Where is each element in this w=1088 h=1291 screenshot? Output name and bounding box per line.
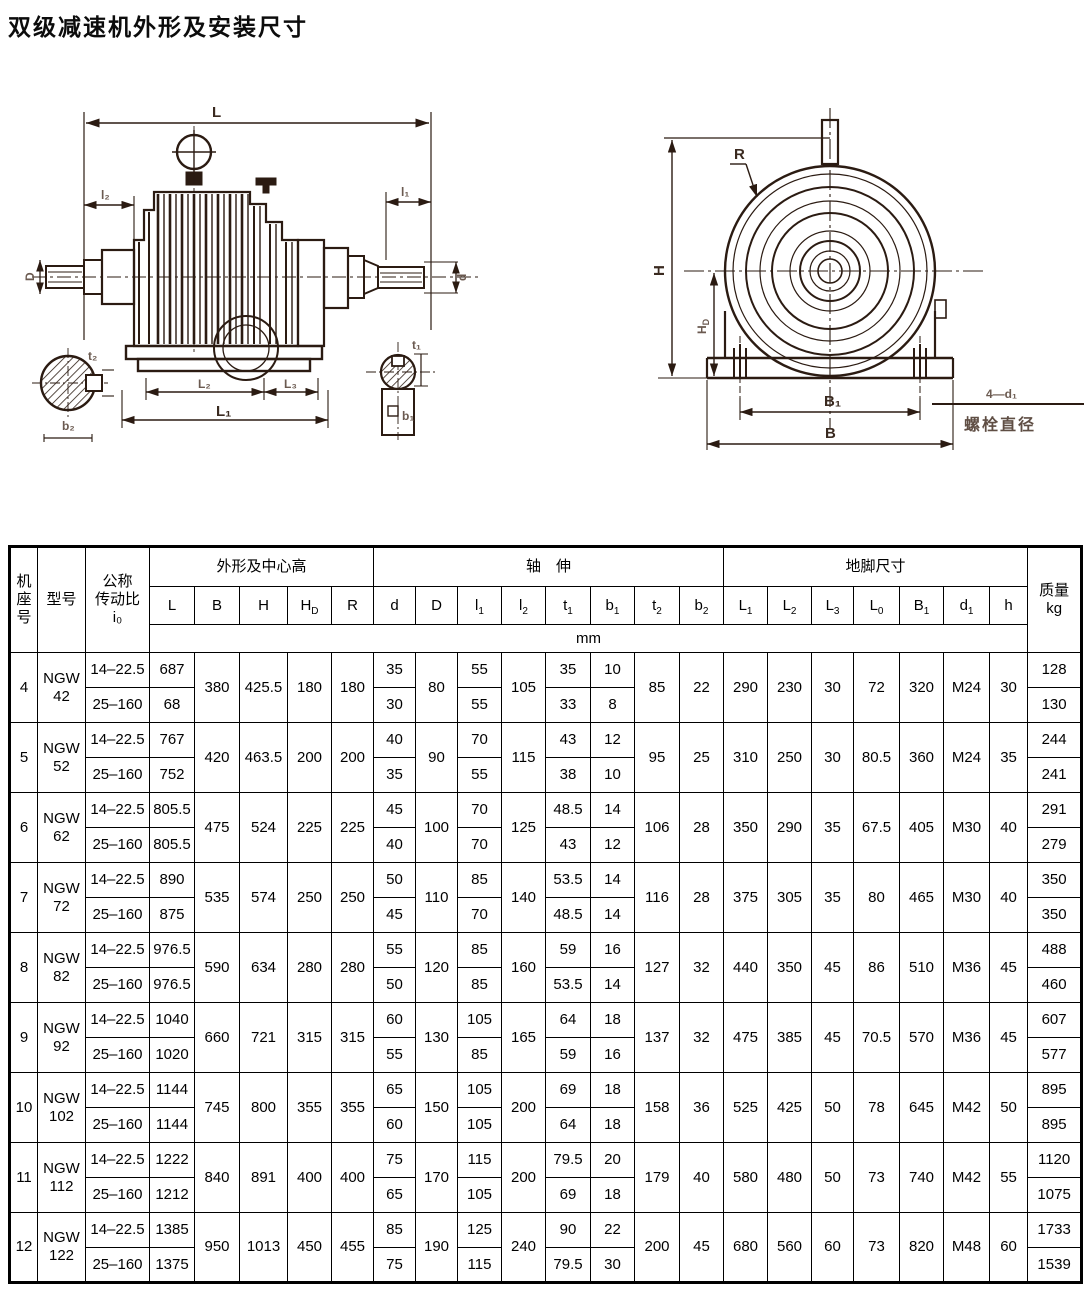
cell-frame-no: 10	[10, 1073, 38, 1143]
cell-frame-no: 4	[10, 653, 38, 723]
cell-L1: 310	[724, 723, 768, 793]
cell-B1: 740	[900, 1143, 944, 1213]
table-header-groups: 机 座 号 型号 公称 传动比 i₀ 外形及中心高 轴 伸 地脚尺寸 质量 kg	[10, 547, 1082, 587]
cell-ratio: 25–160	[86, 1108, 150, 1143]
cell-L0: 73	[854, 1143, 900, 1213]
cell-b2: 45	[680, 1213, 724, 1283]
cell-mass: 895	[1028, 1073, 1082, 1108]
header-foot-group: 地脚尺寸	[724, 547, 1028, 587]
page-title: 双级减速机外形及安装尺寸	[8, 8, 308, 42]
cell-L: 1375	[150, 1248, 195, 1283]
cell-L: 875	[150, 898, 195, 933]
cell-B1: 570	[900, 1003, 944, 1073]
col-header-t2: t2	[635, 587, 680, 625]
col-header-H: H	[240, 587, 288, 625]
cell-R: 315	[332, 1003, 374, 1073]
cell-t2: 85	[635, 653, 680, 723]
cell-HD: 180	[288, 653, 332, 723]
cell-b1: 10	[591, 653, 635, 688]
cell-d1: M42	[944, 1073, 990, 1143]
cell-model: NGW 42	[38, 653, 86, 723]
cell-L0: 73	[854, 1213, 900, 1283]
cell-L: 1144	[150, 1108, 195, 1143]
cell-mass: 1733	[1028, 1213, 1082, 1248]
col-header-l2: l2	[502, 587, 546, 625]
cell-ratio: 14–22.5	[86, 1003, 150, 1038]
dim-label-b1: b₁	[402, 409, 414, 423]
cell-b1: 18	[591, 1178, 635, 1213]
cell-B1: 820	[900, 1213, 944, 1283]
cell-B1: 510	[900, 933, 944, 1003]
table-row: 4NGW 4214–22.5687380425.5180180358055105…	[10, 653, 1082, 688]
col-header-l1: l1	[458, 587, 502, 625]
cell-mass: 244	[1028, 723, 1082, 758]
cell-t2: 95	[635, 723, 680, 793]
cell-L2: 385	[768, 1003, 812, 1073]
cell-ratio: 14–22.5	[86, 1073, 150, 1108]
cell-mass: 1539	[1028, 1248, 1082, 1283]
cell-D: 90	[416, 723, 458, 793]
cell-B: 745	[195, 1073, 240, 1143]
header-mass: 质量 kg	[1028, 547, 1082, 653]
cell-ratio: 14–22.5	[86, 933, 150, 968]
cell-R: 355	[332, 1073, 374, 1143]
cell-h: 55	[990, 1143, 1028, 1213]
cell-d: 60	[374, 1108, 416, 1143]
cell-D: 150	[416, 1073, 458, 1143]
cell-B: 590	[195, 933, 240, 1003]
cell-t1: 53.5	[546, 863, 591, 898]
cell-l1: 55	[458, 653, 502, 688]
cell-frame-no: 11	[10, 1143, 38, 1213]
cell-d: 55	[374, 1038, 416, 1073]
cell-mass: 460	[1028, 968, 1082, 1003]
cell-L3: 45	[812, 933, 854, 1003]
cell-ratio: 25–160	[86, 1038, 150, 1073]
cell-l1: 70	[458, 828, 502, 863]
cell-t1: 48.5	[546, 793, 591, 828]
header-model: 型号	[38, 547, 86, 653]
dim-label-L2: L₂	[198, 377, 211, 391]
cell-b1: 16	[591, 1038, 635, 1073]
col-header-L1: L1	[724, 587, 768, 625]
cell-L: 1385	[150, 1213, 195, 1248]
cell-d1: M42	[944, 1143, 990, 1213]
cell-ratio: 14–22.5	[86, 1213, 150, 1248]
cell-D: 120	[416, 933, 458, 1003]
cell-HD: 400	[288, 1143, 332, 1213]
cell-b1: 14	[591, 898, 635, 933]
cell-t2: 106	[635, 793, 680, 863]
cell-B: 475	[195, 793, 240, 863]
cell-L3: 35	[812, 863, 854, 933]
cell-h: 60	[990, 1213, 1028, 1283]
cell-t1: 64	[546, 1003, 591, 1038]
cell-l2: 140	[502, 863, 546, 933]
cell-b1: 18	[591, 1003, 635, 1038]
table-header-unit: mm	[10, 625, 1082, 653]
cell-frame-no: 6	[10, 793, 38, 863]
cell-b1: 18	[591, 1108, 635, 1143]
cell-l2: 160	[502, 933, 546, 1003]
cell-ratio: 14–22.5	[86, 653, 150, 688]
cell-L1: 525	[724, 1073, 768, 1143]
cell-b1: 18	[591, 1073, 635, 1108]
cell-ratio: 25–160	[86, 828, 150, 863]
cell-d: 45	[374, 898, 416, 933]
cell-frame-no: 12	[10, 1213, 38, 1283]
cell-l2: 200	[502, 1073, 546, 1143]
cell-L1: 475	[724, 1003, 768, 1073]
cell-model: NGW 92	[38, 1003, 86, 1073]
cell-l1: 55	[458, 688, 502, 723]
cell-t1: 33	[546, 688, 591, 723]
cell-L2: 425	[768, 1073, 812, 1143]
cell-B1: 320	[900, 653, 944, 723]
cell-l1: 85	[458, 863, 502, 898]
cell-t2: 200	[635, 1213, 680, 1283]
cell-t2: 137	[635, 1003, 680, 1073]
cell-L3: 60	[812, 1213, 854, 1283]
cell-L3: 30	[812, 653, 854, 723]
dim-label-l2: l₂	[101, 188, 110, 202]
cell-L2: 560	[768, 1213, 812, 1283]
cell-mass: 607	[1028, 1003, 1082, 1038]
cell-t1: 35	[546, 653, 591, 688]
dim-label-R: R	[734, 146, 745, 163]
cell-b2: 25	[680, 723, 724, 793]
col-header-D: D	[416, 587, 458, 625]
header-frame-no: 机 座 号	[10, 547, 38, 653]
cell-t1: 43	[546, 723, 591, 758]
cell-frame-no: 9	[10, 1003, 38, 1073]
cell-HD: 200	[288, 723, 332, 793]
dim-label-t2: t₂	[88, 349, 97, 363]
dim-label-D: D	[23, 272, 37, 281]
col-header-b2: b2	[680, 587, 724, 625]
cell-mass: 350	[1028, 898, 1082, 933]
cell-l2: 105	[502, 653, 546, 723]
cell-h: 45	[990, 1003, 1028, 1073]
cell-H: 524	[240, 793, 288, 863]
reducer-front-view-drawing: R H HD B₁ B 4—d₁ 螺栓直径	[634, 106, 1088, 484]
cell-B: 420	[195, 723, 240, 793]
bolt-count-label: 4—d₁	[986, 387, 1017, 401]
cell-l2: 165	[502, 1003, 546, 1073]
cell-L2: 305	[768, 863, 812, 933]
cell-mass: 130	[1028, 688, 1082, 723]
col-header-L0: L0	[854, 587, 900, 625]
cell-t1: 64	[546, 1108, 591, 1143]
cell-ratio: 25–160	[86, 898, 150, 933]
cell-HD: 315	[288, 1003, 332, 1073]
cell-l1: 55	[458, 758, 502, 793]
col-header-L3: L3	[812, 587, 854, 625]
cell-l1: 105	[458, 1003, 502, 1038]
dim-label-HD: HD	[695, 318, 711, 334]
cell-R: 400	[332, 1143, 374, 1213]
cell-R: 455	[332, 1213, 374, 1283]
cell-B1: 405	[900, 793, 944, 863]
cell-b1: 14	[591, 863, 635, 898]
cell-l1: 85	[458, 968, 502, 1003]
cell-d1: M36	[944, 1003, 990, 1073]
cell-L3: 30	[812, 723, 854, 793]
cell-L0: 72	[854, 653, 900, 723]
col-header-d: d	[374, 587, 416, 625]
cell-mass: 895	[1028, 1108, 1082, 1143]
cell-R: 250	[332, 863, 374, 933]
cell-b2: 28	[680, 793, 724, 863]
dim-label-L: L	[212, 104, 221, 121]
cell-b1: 8	[591, 688, 635, 723]
cell-d: 50	[374, 968, 416, 1003]
cell-B1: 360	[900, 723, 944, 793]
cell-t1: 69	[546, 1073, 591, 1108]
dimension-table-body: 4NGW 4214–22.5687380425.5180180358055105…	[10, 653, 1082, 1283]
cell-h: 45	[990, 933, 1028, 1003]
cell-t2: 158	[635, 1073, 680, 1143]
cell-mass: 128	[1028, 653, 1082, 688]
cell-L: 976.5	[150, 933, 195, 968]
cell-L2: 290	[768, 793, 812, 863]
cell-L0: 80.5	[854, 723, 900, 793]
cell-d: 50	[374, 863, 416, 898]
cell-h: 30	[990, 653, 1028, 723]
cell-B: 660	[195, 1003, 240, 1073]
cell-L1: 680	[724, 1213, 768, 1283]
cell-L1: 350	[724, 793, 768, 863]
cell-d1: M36	[944, 933, 990, 1003]
table-row: 6NGW 6214–22.5805.5475524225225451007012…	[10, 793, 1082, 828]
cell-L: 1222	[150, 1143, 195, 1178]
cell-L: 1212	[150, 1178, 195, 1213]
cell-L: 1040	[150, 1003, 195, 1038]
cell-B: 535	[195, 863, 240, 933]
cell-d1: M24	[944, 653, 990, 723]
cell-l1: 105	[458, 1178, 502, 1213]
col-header-L: L	[150, 587, 195, 625]
cell-t2: 179	[635, 1143, 680, 1213]
cell-l1: 85	[458, 1038, 502, 1073]
cell-b1: 20	[591, 1143, 635, 1178]
table-row: 8NGW 8214–22.5976.5590634280280551208516…	[10, 933, 1082, 968]
col-header-B: B	[195, 587, 240, 625]
cell-b2: 32	[680, 933, 724, 1003]
cell-B: 840	[195, 1143, 240, 1213]
cell-mass: 350	[1028, 863, 1082, 898]
cell-b1: 30	[591, 1248, 635, 1283]
cell-t1: 69	[546, 1178, 591, 1213]
cell-ratio: 14–22.5	[86, 863, 150, 898]
cell-D: 130	[416, 1003, 458, 1073]
cell-d: 40	[374, 723, 416, 758]
dim-label-b2: b₂	[62, 419, 75, 433]
cell-h: 35	[990, 723, 1028, 793]
col-header-t1: t1	[546, 587, 591, 625]
dim-label-B1: B₁	[824, 393, 841, 410]
cell-h: 40	[990, 793, 1028, 863]
cell-R: 200	[332, 723, 374, 793]
cell-mass: 241	[1028, 758, 1082, 793]
col-header-b1: b1	[591, 587, 635, 625]
cell-L2: 350	[768, 933, 812, 1003]
dimension-table: 机 座 号 型号 公称 传动比 i₀ 外形及中心高 轴 伸 地脚尺寸 质量 kg…	[8, 545, 1083, 1284]
cell-HD: 355	[288, 1073, 332, 1143]
cell-mass: 291	[1028, 793, 1082, 828]
cell-t1: 59	[546, 1038, 591, 1073]
col-header-B1: B1	[900, 587, 944, 625]
cell-l1: 115	[458, 1248, 502, 1283]
cell-b2: 32	[680, 1003, 724, 1073]
cell-model: NGW 112	[38, 1143, 86, 1213]
cell-d: 85	[374, 1213, 416, 1248]
cell-model: NGW 62	[38, 793, 86, 863]
table-row: 7NGW 7214–22.589053557425025050110851405…	[10, 863, 1082, 898]
cell-d: 35	[374, 758, 416, 793]
table-row: 5NGW 5214–22.5767420463.5200200409070115…	[10, 723, 1082, 758]
cell-l1: 85	[458, 933, 502, 968]
cell-L: 805.5	[150, 793, 195, 828]
cell-H: 463.5	[240, 723, 288, 793]
cell-L: 68	[150, 688, 195, 723]
cell-ratio: 25–160	[86, 1248, 150, 1283]
cell-l1: 105	[458, 1073, 502, 1108]
cell-model: NGW 122	[38, 1213, 86, 1283]
cell-t1: 38	[546, 758, 591, 793]
cell-L: 976.5	[150, 968, 195, 1003]
cell-b2: 40	[680, 1143, 724, 1213]
table-header-columns: LBHHDRdDl1l2t1b1t2b2L1L2L3L0B1d1h	[10, 587, 1082, 625]
cell-b1: 14	[591, 793, 635, 828]
cell-l1: 70	[458, 793, 502, 828]
col-header-R: R	[332, 587, 374, 625]
cell-L: 687	[150, 653, 195, 688]
cell-d: 55	[374, 933, 416, 968]
table-row: 12NGW 12214–22.5138595010134504558519012…	[10, 1213, 1082, 1248]
cell-ratio: 14–22.5	[86, 793, 150, 828]
bolt-diameter-caption: 螺栓直径	[964, 415, 1036, 434]
cell-frame-no: 5	[10, 723, 38, 793]
cell-R: 280	[332, 933, 374, 1003]
cell-model: NGW 82	[38, 933, 86, 1003]
cell-mass: 1120	[1028, 1143, 1082, 1178]
cell-mass: 1075	[1028, 1178, 1082, 1213]
cell-d1: M48	[944, 1213, 990, 1283]
cell-L1: 580	[724, 1143, 768, 1213]
cell-b1: 12	[591, 828, 635, 863]
cell-d: 35	[374, 653, 416, 688]
dim-label-t1: t₁	[412, 338, 421, 352]
cell-L: 767	[150, 723, 195, 758]
cell-t1: 79.5	[546, 1143, 591, 1178]
cell-d: 75	[374, 1248, 416, 1283]
cell-b1: 16	[591, 933, 635, 968]
cell-L: 890	[150, 863, 195, 898]
cell-HD: 250	[288, 863, 332, 933]
cell-model: NGW 52	[38, 723, 86, 793]
cell-mass: 488	[1028, 933, 1082, 968]
table-row: 10NGW 10214–22.5114474580035535565150105…	[10, 1073, 1082, 1108]
cell-L3: 50	[812, 1143, 854, 1213]
cell-l1: 125	[458, 1213, 502, 1248]
cell-D: 190	[416, 1213, 458, 1283]
cell-L0: 67.5	[854, 793, 900, 863]
cell-l1: 115	[458, 1143, 502, 1178]
cell-L2: 250	[768, 723, 812, 793]
header-ratio: 公称 传动比 i₀	[86, 547, 150, 653]
cell-L0: 78	[854, 1073, 900, 1143]
cell-b2: 28	[680, 863, 724, 933]
cell-L: 1020	[150, 1038, 195, 1073]
cell-l1: 70	[458, 898, 502, 933]
cell-d: 30	[374, 688, 416, 723]
dim-label-L3: L₃	[284, 377, 297, 391]
cell-B: 380	[195, 653, 240, 723]
cell-L: 752	[150, 758, 195, 793]
header-outline-group: 外形及中心高	[150, 547, 374, 587]
cell-frame-no: 7	[10, 863, 38, 933]
cell-t1: 53.5	[546, 968, 591, 1003]
cell-d: 60	[374, 1003, 416, 1038]
cell-L3: 35	[812, 793, 854, 863]
cell-L: 1144	[150, 1073, 195, 1108]
cell-ratio: 14–22.5	[86, 1143, 150, 1178]
col-header-h: h	[990, 587, 1028, 625]
cell-ratio: 25–160	[86, 688, 150, 723]
col-header-HD: HD	[288, 587, 332, 625]
cell-model: NGW 102	[38, 1073, 86, 1143]
cell-L1: 290	[724, 653, 768, 723]
cell-t2: 116	[635, 863, 680, 933]
cell-b2: 36	[680, 1073, 724, 1143]
cell-L1: 375	[724, 863, 768, 933]
cell-t1: 79.5	[546, 1248, 591, 1283]
cell-l2: 115	[502, 723, 546, 793]
cell-B1: 465	[900, 863, 944, 933]
cell-l2: 200	[502, 1143, 546, 1213]
cell-frame-no: 8	[10, 933, 38, 1003]
cell-H: 574	[240, 863, 288, 933]
cell-t1: 43	[546, 828, 591, 863]
header-unit-mm: mm	[150, 625, 1028, 653]
col-header-d1: d1	[944, 587, 990, 625]
cell-H: 721	[240, 1003, 288, 1073]
cell-d1: M24	[944, 723, 990, 793]
cell-h: 40	[990, 863, 1028, 933]
cell-H: 634	[240, 933, 288, 1003]
cell-H: 800	[240, 1073, 288, 1143]
cell-HD: 450	[288, 1213, 332, 1283]
cell-d: 45	[374, 793, 416, 828]
table-row: 11NGW 11214–22.5122284089140040075170115…	[10, 1143, 1082, 1178]
cell-L3: 45	[812, 1003, 854, 1073]
header-shaft-group: 轴 伸	[374, 547, 724, 587]
cell-H: 1013	[240, 1213, 288, 1283]
cell-ratio: 25–160	[86, 1178, 150, 1213]
cell-t1: 59	[546, 933, 591, 968]
cell-b2: 22	[680, 653, 724, 723]
cell-b1: 14	[591, 968, 635, 1003]
dim-label-d: d	[455, 274, 469, 281]
cell-D: 170	[416, 1143, 458, 1213]
cell-ratio: 25–160	[86, 758, 150, 793]
cell-b1: 22	[591, 1213, 635, 1248]
cell-l2: 125	[502, 793, 546, 863]
cell-d: 65	[374, 1178, 416, 1213]
cell-D: 100	[416, 793, 458, 863]
cell-R: 225	[332, 793, 374, 863]
